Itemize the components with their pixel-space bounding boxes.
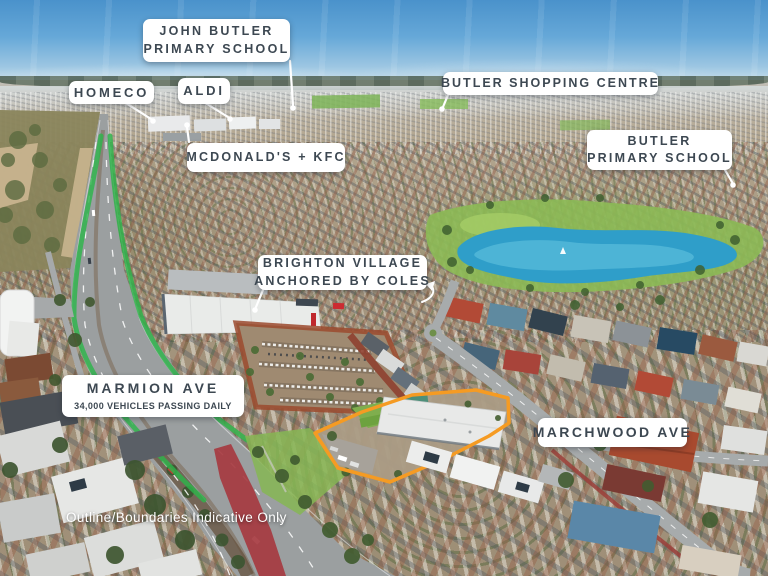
callout-text: PRIMARY SCHOOL xyxy=(587,150,732,167)
leader-line-aldi xyxy=(207,104,228,117)
callout-marchwood-ave: MARCHWOOD AVE xyxy=(538,418,687,447)
callout-text: MARMION AVE xyxy=(87,379,220,398)
leader-dot-homeco xyxy=(150,118,156,124)
callout-mcdonalds-kfc: MCDONALD'S + KFC xyxy=(187,143,345,172)
callout-text: MCDONALD'S + KFC xyxy=(186,149,345,166)
callout-butler-shopping-centre: BUTLER SHOPPING CENTRE xyxy=(443,72,658,95)
leader-dot-mcdonalds-kfc xyxy=(184,122,190,128)
callout-text: MARCHWOOD AVE xyxy=(533,423,693,442)
callout-marmion-ave: MARMION AVE 34,000 VEHICLES PASSING DAIL… xyxy=(62,375,244,417)
park xyxy=(426,194,764,311)
leader-dot-john-butler-primary-school xyxy=(290,105,296,111)
disclaimer-text: Outline/Boundaries Indicative Only xyxy=(66,510,287,525)
callout-subtext: 34,000 VEHICLES PASSING DAILY xyxy=(74,400,232,412)
callout-homeco: HOMECO xyxy=(69,81,154,104)
leader-dot-brighton-village xyxy=(252,307,258,313)
leader-line-homeco xyxy=(126,103,151,119)
townhouses xyxy=(406,441,574,504)
leader-line-john-butler-primary-school xyxy=(290,61,293,105)
callout-john-butler-primary-school: JOHN BUTLER PRIMARY SCHOOL xyxy=(143,19,290,62)
callout-text: BUTLER SHOPPING CENTRE xyxy=(441,75,660,92)
leader-dot-aldi xyxy=(227,116,233,122)
leader-dot-butler-shopping-centre xyxy=(439,106,445,112)
callout-text: ANCHORED BY COLES xyxy=(254,273,431,290)
callout-text: PRIMARY SCHOOL xyxy=(143,41,289,58)
sports-fields xyxy=(312,94,610,130)
callout-text: JOHN BUTLER xyxy=(159,23,273,40)
aerial-property-photo: JOHN BUTLER PRIMARY SCHOOL HOMECO ALDI M… xyxy=(0,0,768,576)
callout-aldi: ALDI xyxy=(178,78,230,104)
callout-text: ALDI xyxy=(183,82,225,100)
callout-butler-primary-school: BUTLER PRIMARY SCHOOL xyxy=(587,130,732,170)
commercial-strip xyxy=(148,115,280,141)
callout-text: HOMECO xyxy=(74,84,149,102)
leader-dot-butler-primary-school xyxy=(730,182,736,188)
callout-text: BUTLER xyxy=(628,133,692,150)
callout-brighton-village: BRIGHTON VILLAGE ANCHORED BY COLES xyxy=(258,255,427,290)
leader-line-butler-primary-school xyxy=(725,170,732,182)
callout-text: BRIGHTON VILLAGE xyxy=(263,255,422,272)
